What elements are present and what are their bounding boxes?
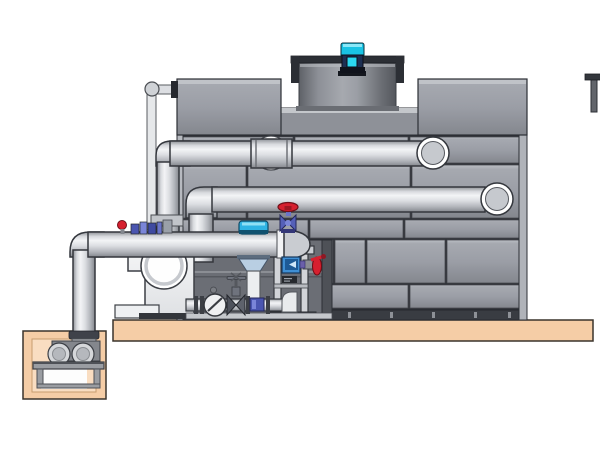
tower-panel [335,240,365,283]
injection-fitting [131,224,139,234]
rail-tick [432,312,435,318]
tower-panel [410,285,519,308]
pit-pump-casing-hub [77,348,90,361]
pit-pump-leg [94,369,100,386]
upper-pipe-run [170,141,424,166]
fan-shroud-base-shadow [296,106,399,111]
skid-corner-post [322,240,332,318]
tower-panel [310,220,403,238]
meter-label-line [284,278,292,279]
gate-valve-bonnet [232,287,240,296]
injection-fitting [148,223,156,234]
fan-shroud-flare-tab [396,56,404,83]
fan-motor-base [340,67,365,73]
cooling-tower-illustration [0,0,600,450]
meter-label-line [284,281,290,282]
fan-assembly [291,43,404,111]
rail-tick [348,312,351,318]
control-valve-flange [237,255,270,259]
tower-panel [447,240,519,283]
tower-top-panel-left-highlight [178,80,280,84]
flange [194,296,198,314]
actuator-band [239,230,268,234]
upper-pipe-coupling [251,139,292,168]
rail-tick [508,312,511,318]
gate-valve-stem [235,279,238,288]
overflow-pipe [147,90,156,230]
fan-shroud-flare-tab [291,56,299,83]
tower-top-panel-right-highlight [419,80,526,84]
butterfly-valve-neck [300,261,305,268]
middle-pipe-run [212,187,485,212]
injection-fitting-gray [163,220,172,233]
frame-crossbar [274,284,308,288]
globe-valve-disc [285,220,291,226]
middle-pipe-elbow-dome [486,188,509,211]
upper-pipe-elbow-dome [422,142,445,165]
overflow-flange [171,81,178,98]
injection-fitting [157,222,162,234]
tower-top-panel-right [418,79,527,135]
vent-stub-cap [585,74,600,80]
injection-fitting [140,222,147,234]
concrete-slab [113,320,593,341]
tower-right-edge [519,135,527,320]
blue-tee-stripe [252,300,256,309]
butterfly-valve-lever-knob [321,254,326,259]
tower-panel [405,220,519,238]
header-pit-flange [69,331,99,339]
pit-pump-leg [37,369,43,386]
tower-top-panel-left [177,79,281,135]
low-run-elbow-up [282,292,297,312]
fan-motor-window [347,57,357,67]
meter-label-plate [282,276,297,283]
overflow-elbow [145,82,159,96]
drawing-canvas [0,0,600,450]
pit-pump-motor-hub [53,348,66,361]
flange [266,296,270,314]
rail-tick [474,312,477,318]
tower-panel [367,240,445,283]
mini-ball-valve-handle [118,221,127,230]
pit-pump-table-edge [33,362,104,364]
ground [23,320,593,399]
flange [246,296,250,314]
actuator-highlight [242,223,265,226]
check-valve-knob [211,287,217,293]
header-run [88,232,286,257]
mini-ball-valve-stem [121,229,125,234]
pit-pump-shelf [37,384,100,388]
rail-tick [390,312,393,318]
vent-stub [591,79,597,112]
fan-motor-top-highlight [343,44,362,47]
globe-valve-hub [285,206,292,210]
globe-valve-flange [281,229,295,233]
